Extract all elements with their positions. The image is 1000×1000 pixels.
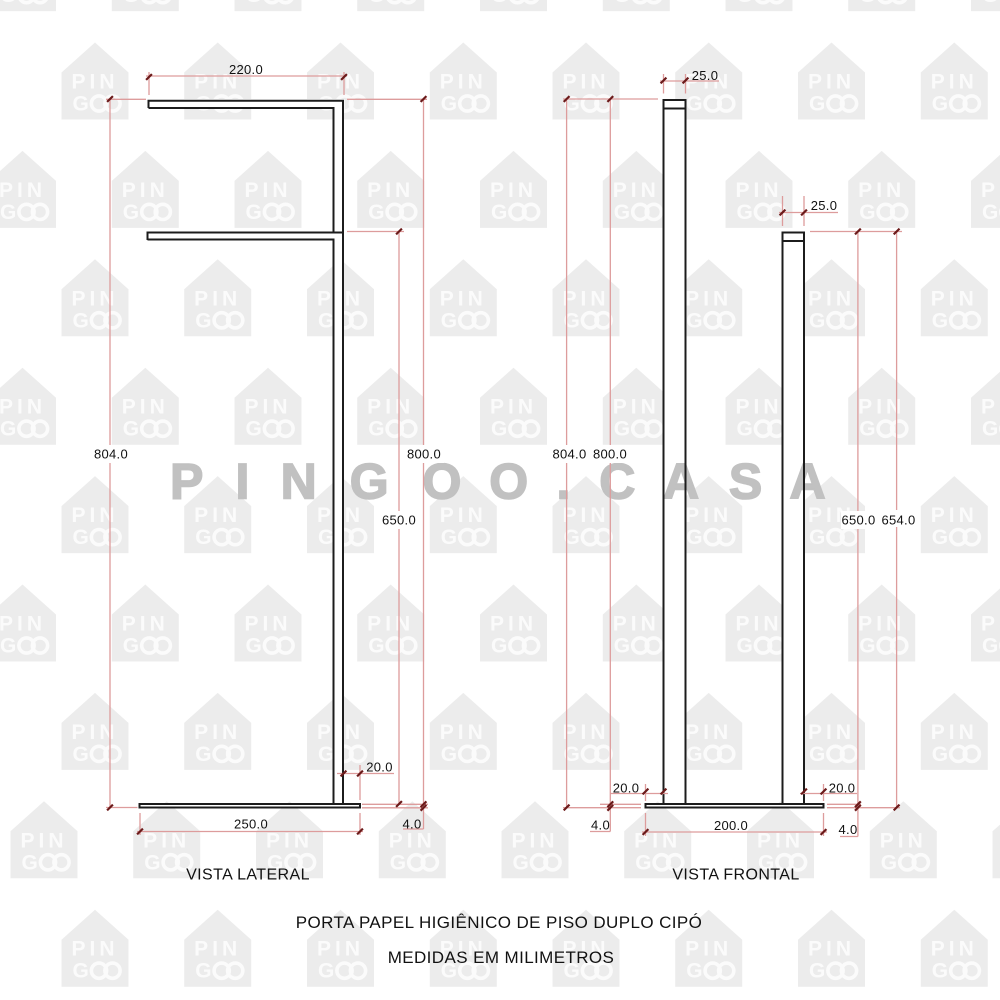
svg-text:200.0: 200.0 bbox=[714, 818, 748, 833]
svg-text:804.0: 804.0 bbox=[94, 447, 128, 462]
svg-text:250.0: 250.0 bbox=[234, 817, 268, 832]
svg-text:MEDIDAS EM MILIMETROS: MEDIDAS EM MILIMETROS bbox=[388, 948, 615, 967]
svg-text:P: P bbox=[170, 454, 203, 510]
svg-text:4.0: 4.0 bbox=[403, 817, 422, 832]
svg-text:650.0: 650.0 bbox=[382, 513, 416, 528]
svg-text:VISTA FRONTAL: VISTA FRONTAL bbox=[672, 867, 799, 884]
svg-text:25.0: 25.0 bbox=[692, 68, 719, 83]
svg-text:4.0: 4.0 bbox=[591, 818, 610, 833]
svg-text:A: A bbox=[663, 454, 699, 510]
svg-text:800.0: 800.0 bbox=[407, 447, 441, 462]
svg-text:N: N bbox=[281, 454, 317, 510]
svg-text:S: S bbox=[729, 454, 762, 510]
svg-text:VISTA LATERAL: VISTA LATERAL bbox=[186, 867, 310, 884]
svg-text:220.0: 220.0 bbox=[229, 62, 263, 77]
svg-text:25.0: 25.0 bbox=[811, 198, 838, 213]
svg-text:4.0: 4.0 bbox=[839, 822, 858, 837]
svg-text:20.0: 20.0 bbox=[366, 760, 393, 775]
svg-text:20.0: 20.0 bbox=[829, 781, 856, 796]
svg-text:O: O bbox=[489, 454, 528, 510]
svg-text:654.0: 654.0 bbox=[881, 513, 915, 528]
svg-text:800.0: 800.0 bbox=[593, 447, 627, 462]
svg-text:650.0: 650.0 bbox=[841, 513, 875, 528]
svg-text:I: I bbox=[235, 454, 249, 510]
svg-text:20.0: 20.0 bbox=[613, 781, 640, 796]
svg-text:A: A bbox=[789, 454, 825, 510]
svg-text:804.0: 804.0 bbox=[552, 447, 586, 462]
svg-text:G: G bbox=[350, 454, 389, 510]
svg-text:PORTA PAPEL HIGIÊNICO DE PISO: PORTA PAPEL HIGIÊNICO DE PISO DUPLO CIPÓ bbox=[296, 913, 702, 932]
